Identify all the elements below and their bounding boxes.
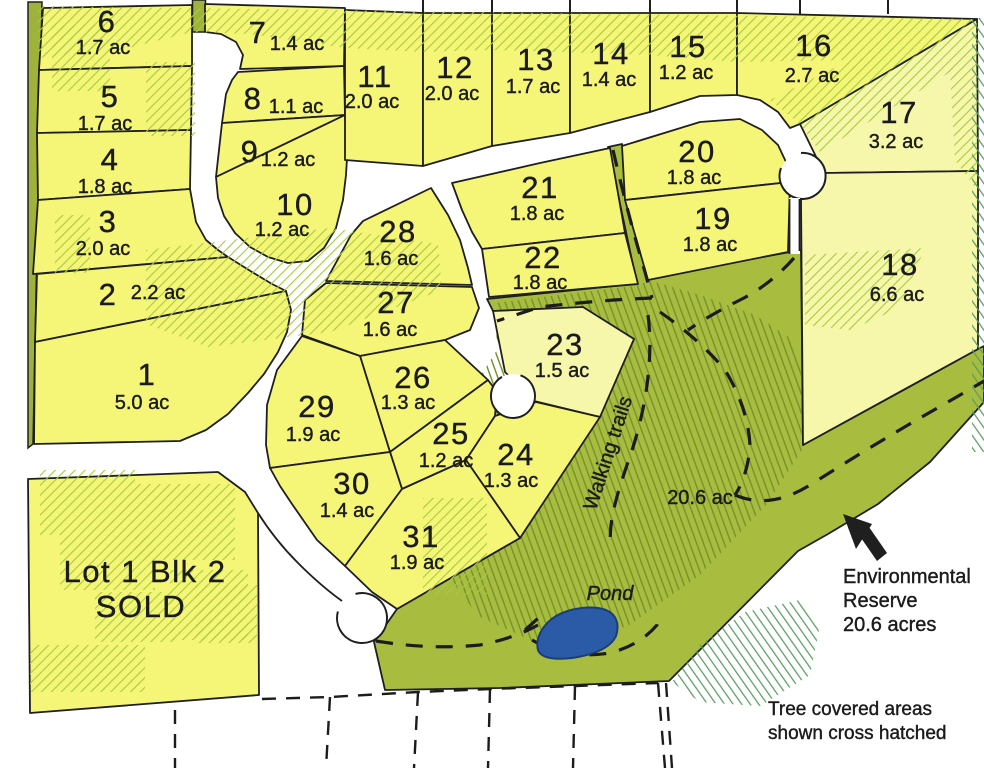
svg-text:1.7 ac: 1.7 ac: [76, 37, 130, 59]
svg-text:27: 27: [377, 285, 414, 320]
svg-text:2.2 ac: 2.2 ac: [131, 282, 185, 304]
svg-text:1.7 ac: 1.7 ac: [506, 76, 560, 98]
svg-text:19: 19: [694, 201, 731, 236]
svg-text:9: 9: [241, 134, 260, 169]
svg-text:20: 20: [678, 134, 715, 169]
svg-text:29: 29: [298, 389, 335, 424]
svg-text:Reserve: Reserve: [843, 590, 917, 612]
svg-text:SOLD: SOLD: [96, 589, 186, 624]
svg-text:3: 3: [99, 204, 118, 239]
svg-text:Lot 1 Blk 2: Lot 1 Blk 2: [64, 554, 227, 589]
svg-text:shown cross hatched: shown cross hatched: [768, 723, 947, 744]
svg-text:22: 22: [524, 240, 561, 275]
svg-text:1.2 ac: 1.2 ac: [659, 62, 713, 84]
svg-text:3.2 ac: 3.2 ac: [869, 131, 923, 153]
svg-text:26: 26: [394, 360, 431, 395]
svg-text:1.4 ac: 1.4 ac: [582, 69, 636, 91]
svg-text:28: 28: [379, 214, 416, 249]
svg-text:5.0 ac: 5.0 ac: [115, 392, 169, 414]
svg-text:21: 21: [521, 170, 558, 205]
svg-text:2.0 ac: 2.0 ac: [425, 83, 479, 105]
svg-text:10: 10: [276, 187, 313, 222]
svg-text:11: 11: [357, 59, 392, 94]
svg-text:1.8 ac: 1.8 ac: [510, 203, 564, 225]
svg-text:1.8 ac: 1.8 ac: [683, 234, 737, 256]
svg-text:7: 7: [249, 15, 268, 50]
svg-text:20.6 ac: 20.6 ac: [667, 487, 733, 509]
svg-text:1.8 ac: 1.8 ac: [513, 272, 567, 294]
svg-text:1: 1: [138, 357, 157, 392]
svg-text:1.6 ac: 1.6 ac: [363, 319, 417, 341]
svg-text:4: 4: [101, 142, 120, 177]
svg-text:12: 12: [436, 50, 473, 85]
svg-text:15: 15: [669, 29, 706, 64]
svg-text:1.9 ac: 1.9 ac: [286, 424, 340, 446]
svg-text:13: 13: [517, 42, 554, 77]
svg-text:1.2 ac: 1.2 ac: [261, 149, 315, 171]
svg-text:1.1 ac: 1.1 ac: [269, 96, 323, 118]
svg-text:18: 18: [881, 247, 918, 282]
svg-text:1.7 ac: 1.7 ac: [78, 113, 132, 135]
svg-text:Environmental: Environmental: [843, 566, 971, 588]
svg-text:25: 25: [432, 416, 469, 451]
svg-text:23: 23: [546, 327, 583, 362]
svg-text:17: 17: [880, 95, 917, 130]
svg-text:1.8 ac: 1.8 ac: [667, 167, 721, 189]
svg-text:1.3 ac: 1.3 ac: [484, 470, 538, 492]
svg-text:2: 2: [99, 277, 118, 312]
svg-text:Pond: Pond: [587, 583, 635, 605]
svg-text:1.6 ac: 1.6 ac: [364, 248, 418, 270]
svg-text:Tree covered areas: Tree covered areas: [768, 699, 932, 720]
svg-text:2.0 ac: 2.0 ac: [76, 238, 130, 260]
svg-text:16: 16: [795, 28, 832, 63]
svg-text:6.6 ac: 6.6 ac: [870, 284, 924, 306]
svg-text:31: 31: [402, 519, 439, 554]
svg-text:24: 24: [497, 437, 534, 472]
svg-text:30: 30: [333, 466, 370, 501]
svg-text:1.5 ac: 1.5 ac: [535, 360, 589, 382]
svg-text:2.0 ac: 2.0 ac: [345, 91, 399, 113]
svg-text:2.7 ac: 2.7 ac: [785, 65, 839, 87]
svg-text:1.8 ac: 1.8 ac: [78, 176, 132, 198]
svg-text:1.3 ac: 1.3 ac: [381, 392, 435, 414]
svg-text:6: 6: [98, 4, 117, 39]
svg-text:14: 14: [592, 36, 629, 71]
svg-text:20.6 acres: 20.6 acres: [843, 614, 936, 636]
svg-text:1.9 ac: 1.9 ac: [390, 552, 444, 574]
svg-text:1.4 ac: 1.4 ac: [270, 33, 324, 55]
svg-text:8: 8: [244, 81, 263, 116]
svg-text:1.2 ac: 1.2 ac: [419, 450, 473, 472]
svg-text:1.4 ac: 1.4 ac: [320, 500, 374, 522]
svg-text:5: 5: [101, 79, 120, 114]
svg-text:1.2 ac: 1.2 ac: [255, 219, 309, 241]
